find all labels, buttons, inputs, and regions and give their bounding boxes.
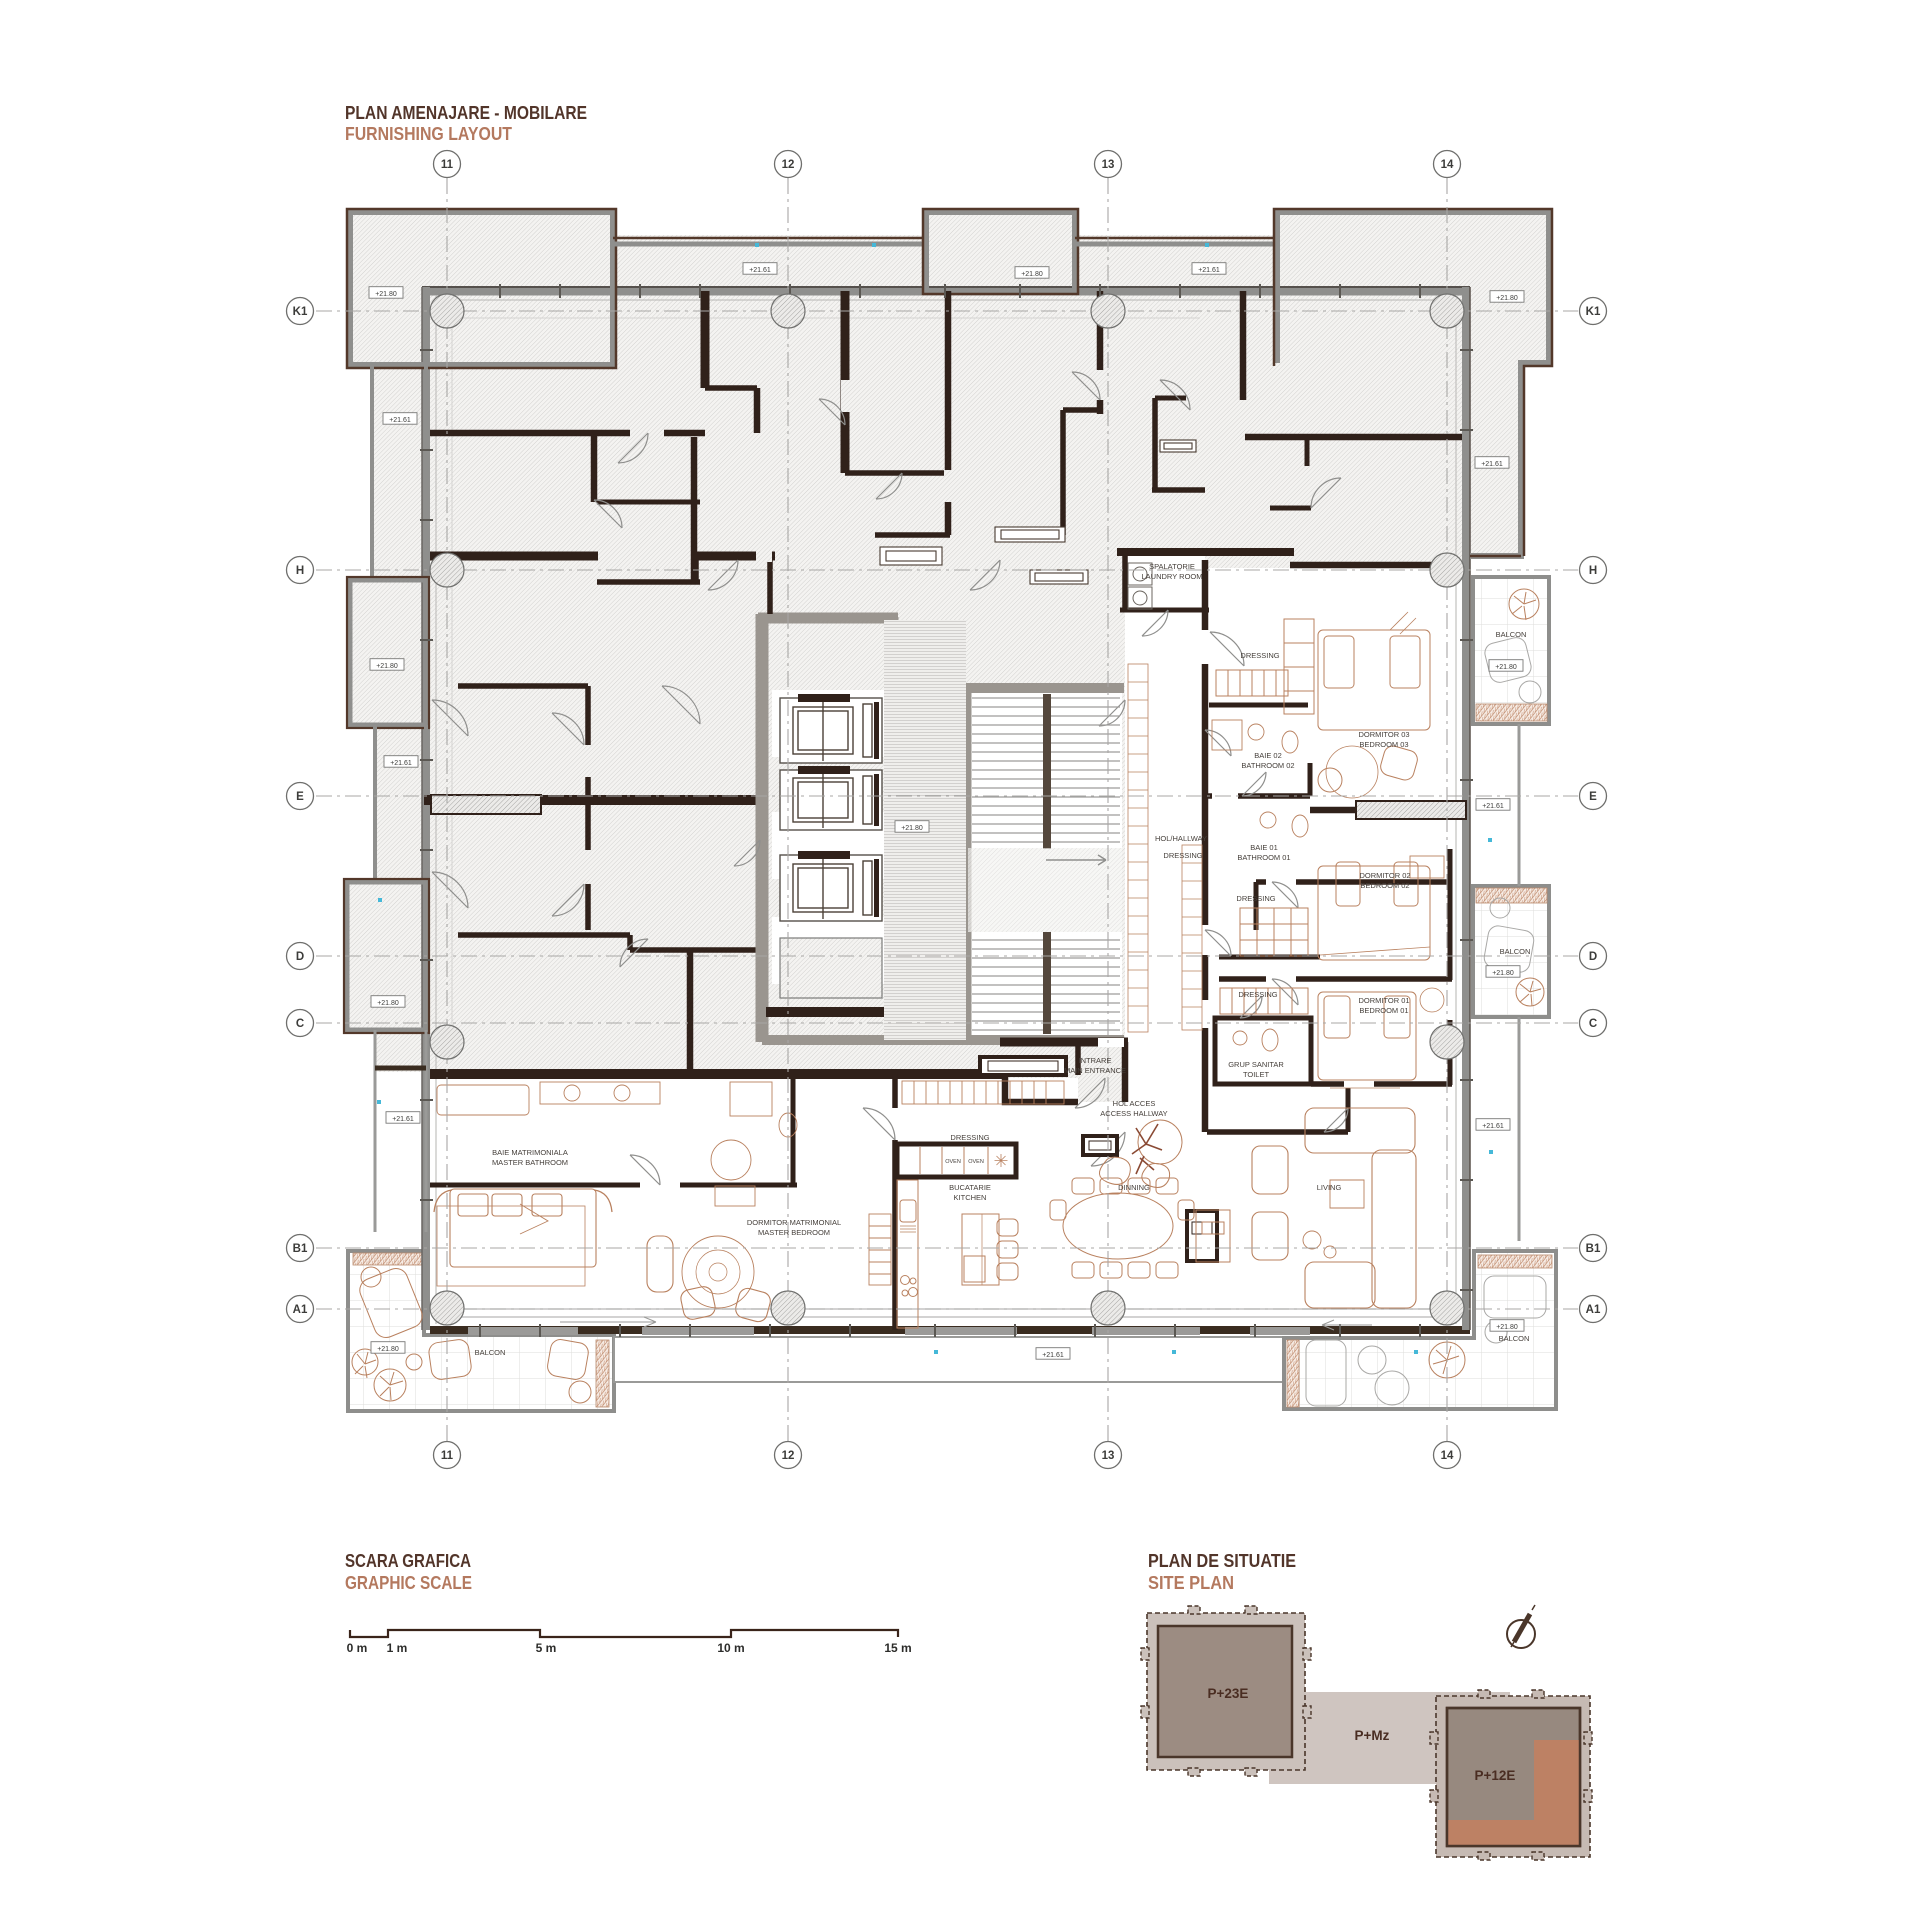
svg-text:SITE PLAN: SITE PLAN (1148, 1572, 1234, 1593)
svg-text:DRESSING: DRESSING (1236, 894, 1275, 903)
svg-text:5 m: 5 m (536, 1641, 557, 1655)
svg-text:B1: B1 (293, 1243, 308, 1255)
svg-text:+21.61: +21.61 (1198, 267, 1220, 274)
svg-text:14: 14 (1441, 1450, 1454, 1462)
svg-text:+21.80: +21.80 (376, 663, 398, 670)
svg-text:DORMITOR MATRIMONIAL: DORMITOR MATRIMONIAL (747, 1218, 841, 1227)
svg-text:P+23E: P+23E (1208, 1686, 1249, 1701)
svg-text:FURNISHING LAYOUT: FURNISHING LAYOUT (345, 123, 513, 144)
svg-text:BATHROOM 01: BATHROOM 01 (1237, 853, 1290, 862)
svg-text:D: D (296, 951, 304, 963)
svg-text:SCARA GRAFICA: SCARA GRAFICA (345, 1550, 471, 1571)
svg-text:K1: K1 (293, 306, 308, 318)
svg-text:DRESSING: DRESSING (950, 1133, 989, 1142)
svg-text:BALCON: BALCON (1500, 947, 1531, 956)
svg-text:P+Mz: P+Mz (1355, 1728, 1390, 1743)
svg-text:B1: B1 (1586, 1243, 1601, 1255)
svg-text:A1: A1 (293, 1304, 308, 1316)
svg-text:11: 11 (441, 159, 454, 171)
svg-text:LAUNDRY ROOM: LAUNDRY ROOM (1142, 572, 1203, 581)
svg-text:+21.80: +21.80 (375, 291, 397, 298)
svg-text:D: D (1589, 951, 1597, 963)
svg-text:BEDROOM 01: BEDROOM 01 (1359, 1006, 1408, 1015)
svg-text:BAIE 02: BAIE 02 (1254, 751, 1282, 760)
svg-text:11: 11 (441, 1450, 454, 1462)
svg-text:C: C (1589, 1018, 1597, 1030)
svg-text:+21.61: +21.61 (389, 417, 411, 424)
svg-text:MASTER BEDROOM: MASTER BEDROOM (758, 1228, 830, 1237)
svg-text:INTRARE: INTRARE (1079, 1056, 1112, 1065)
svg-text:BEDROOM 02: BEDROOM 02 (1360, 881, 1409, 890)
svg-text:+21.80: +21.80 (1021, 271, 1043, 278)
svg-text:DINNING: DINNING (1118, 1183, 1150, 1192)
svg-text:BAIE 01: BAIE 01 (1250, 843, 1278, 852)
svg-text:+21.80: +21.80 (1492, 970, 1514, 977)
svg-text:+21.80: +21.80 (1495, 664, 1517, 671)
svg-text:+21.80: +21.80 (1496, 1324, 1518, 1331)
svg-text:13: 13 (1102, 1450, 1115, 1462)
svg-text:MAIN ENTRANCE: MAIN ENTRANCE (1064, 1066, 1126, 1075)
svg-text:+21.61: +21.61 (1482, 803, 1504, 810)
svg-text:C: C (296, 1018, 304, 1030)
svg-text:GRUP SANITAR: GRUP SANITAR (1228, 1060, 1284, 1069)
svg-text:+21.80: +21.80 (1496, 295, 1518, 302)
svg-text:OVEN: OVEN (945, 1159, 961, 1165)
svg-text:KITCHEN: KITCHEN (954, 1193, 987, 1202)
svg-text:BALCON: BALCON (1496, 630, 1527, 639)
svg-text:LIVING: LIVING (1317, 1183, 1342, 1192)
svg-text:A1: A1 (1586, 1304, 1601, 1316)
svg-text:+21.80: +21.80 (377, 1346, 399, 1353)
svg-text:14: 14 (1441, 159, 1454, 171)
svg-text:+21.61: +21.61 (749, 267, 771, 274)
svg-text:DRESSING: DRESSING (1238, 990, 1277, 999)
svg-text:13: 13 (1102, 159, 1115, 171)
svg-text:H: H (1589, 565, 1597, 577)
svg-text:OVEN: OVEN (968, 1159, 984, 1165)
svg-text:HOL ACCES: HOL ACCES (1113, 1099, 1156, 1108)
svg-text:E: E (1589, 791, 1597, 803)
svg-text:MASTER BATHROOM: MASTER BATHROOM (492, 1158, 568, 1167)
svg-text:BALCON: BALCON (1499, 1334, 1530, 1343)
svg-text:+21.61: +21.61 (1042, 1352, 1064, 1359)
svg-text:BUCATARIE: BUCATARIE (949, 1183, 991, 1192)
svg-text:SPALATORIE: SPALATORIE (1149, 562, 1195, 571)
svg-text:TOILET: TOILET (1243, 1070, 1270, 1079)
svg-text:DRESSING: DRESSING (1163, 851, 1202, 860)
svg-text:H: H (296, 565, 304, 577)
svg-text:+21.61: +21.61 (390, 760, 412, 767)
svg-text:E: E (296, 791, 304, 803)
svg-text:+21.61: +21.61 (392, 1116, 414, 1123)
svg-text:0 m: 0 m (347, 1641, 368, 1655)
svg-text:HOL/HALLWAY: HOL/HALLWAY (1155, 834, 1207, 843)
svg-text:+21.61: +21.61 (1482, 1123, 1504, 1130)
svg-text:K1: K1 (1586, 306, 1601, 318)
svg-text:12: 12 (782, 1450, 795, 1462)
svg-text:P+12E: P+12E (1475, 1768, 1516, 1783)
svg-text:BAIE MATRIMONIALA: BAIE MATRIMONIALA (492, 1148, 568, 1157)
svg-text:BATHROOM 02: BATHROOM 02 (1241, 761, 1294, 770)
svg-text:12: 12 (782, 159, 795, 171)
svg-text:PLAN AMENAJARE - MOBILARE: PLAN AMENAJARE - MOBILARE (345, 102, 587, 123)
svg-text:+21.80: +21.80 (377, 1000, 399, 1007)
svg-text:DRESSING: DRESSING (1240, 651, 1279, 660)
svg-text:DORMITOR 02: DORMITOR 02 (1359, 871, 1410, 880)
svg-text:ACCESS HALLWAY: ACCESS HALLWAY (1100, 1109, 1167, 1118)
svg-text:15 m: 15 m (884, 1641, 911, 1655)
svg-text:DORMITOR 03: DORMITOR 03 (1358, 730, 1409, 739)
svg-text:BEDROOM 03: BEDROOM 03 (1359, 740, 1408, 749)
svg-text:DORMITOR 01: DORMITOR 01 (1358, 996, 1409, 1005)
svg-text:PLAN DE SITUATIE: PLAN DE SITUATIE (1148, 1550, 1296, 1571)
svg-text:GRAPHIC SCALE: GRAPHIC SCALE (345, 1572, 472, 1593)
svg-text:1 m: 1 m (387, 1641, 408, 1655)
svg-text:10 m: 10 m (717, 1641, 744, 1655)
svg-text:+21.61: +21.61 (1481, 461, 1503, 468)
svg-text:+21.80: +21.80 (901, 825, 923, 832)
svg-text:BALCON: BALCON (475, 1348, 506, 1357)
